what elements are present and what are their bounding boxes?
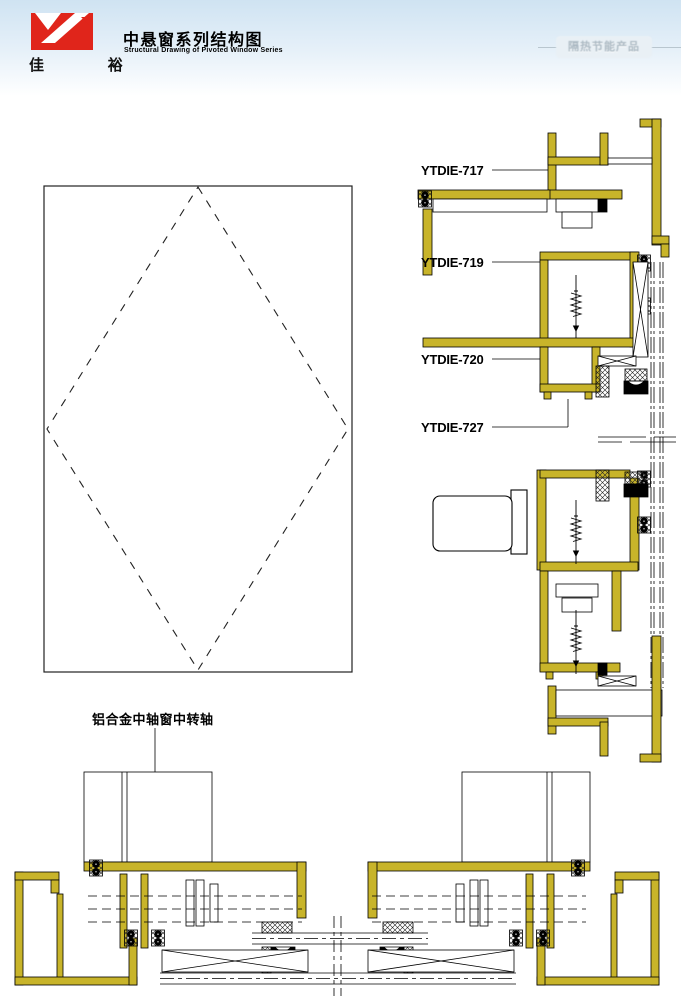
right-jamb-profile [537,872,659,985]
screw-icon [571,500,581,564]
gasket-icon [638,517,651,533]
elevation-drawing [44,186,352,672]
gasket-icon [90,860,103,876]
vertical-section-drawing [418,119,676,762]
gasket-icon [510,930,523,946]
pivot-handle [433,490,527,554]
horizontal-section-drawing [15,728,659,996]
sill-frame-profile [548,636,662,762]
right-sash-assembly [368,862,590,948]
gasket-icon [125,930,138,946]
center-glass-unit [160,916,516,996]
head-frame-profile [548,119,669,257]
left-jamb-profile [15,872,137,985]
gasket-icon [419,191,432,207]
label-ytdie-727: YTDIE-727 [421,420,484,435]
gasket-icon [537,930,550,946]
sash-profile-lower [537,470,639,679]
glass-unit-lower [596,470,648,686]
gasket-icon [152,930,165,946]
label-ytdie-717: YTDIE-717 [421,163,484,178]
catalog-page: 佳 裕 中悬窗系列结构图 Structural Drawing of Pivot… [0,0,681,1000]
gasket-icon [572,860,585,876]
right-pivot-plate [462,772,590,862]
label-ytdie-720: YTDIE-720 [421,352,484,367]
left-pivot-plate [84,772,212,862]
label-pivot-axis: 铝合金中轴窗中转轴 [92,709,214,728]
label-ytdie-719: YTDIE-719 [421,255,484,270]
break-marks [598,437,676,442]
left-sash-assembly [84,862,306,948]
screw-icon [571,275,581,339]
drawing-canvas [0,0,681,1000]
glazing-bead-720 [540,347,600,399]
